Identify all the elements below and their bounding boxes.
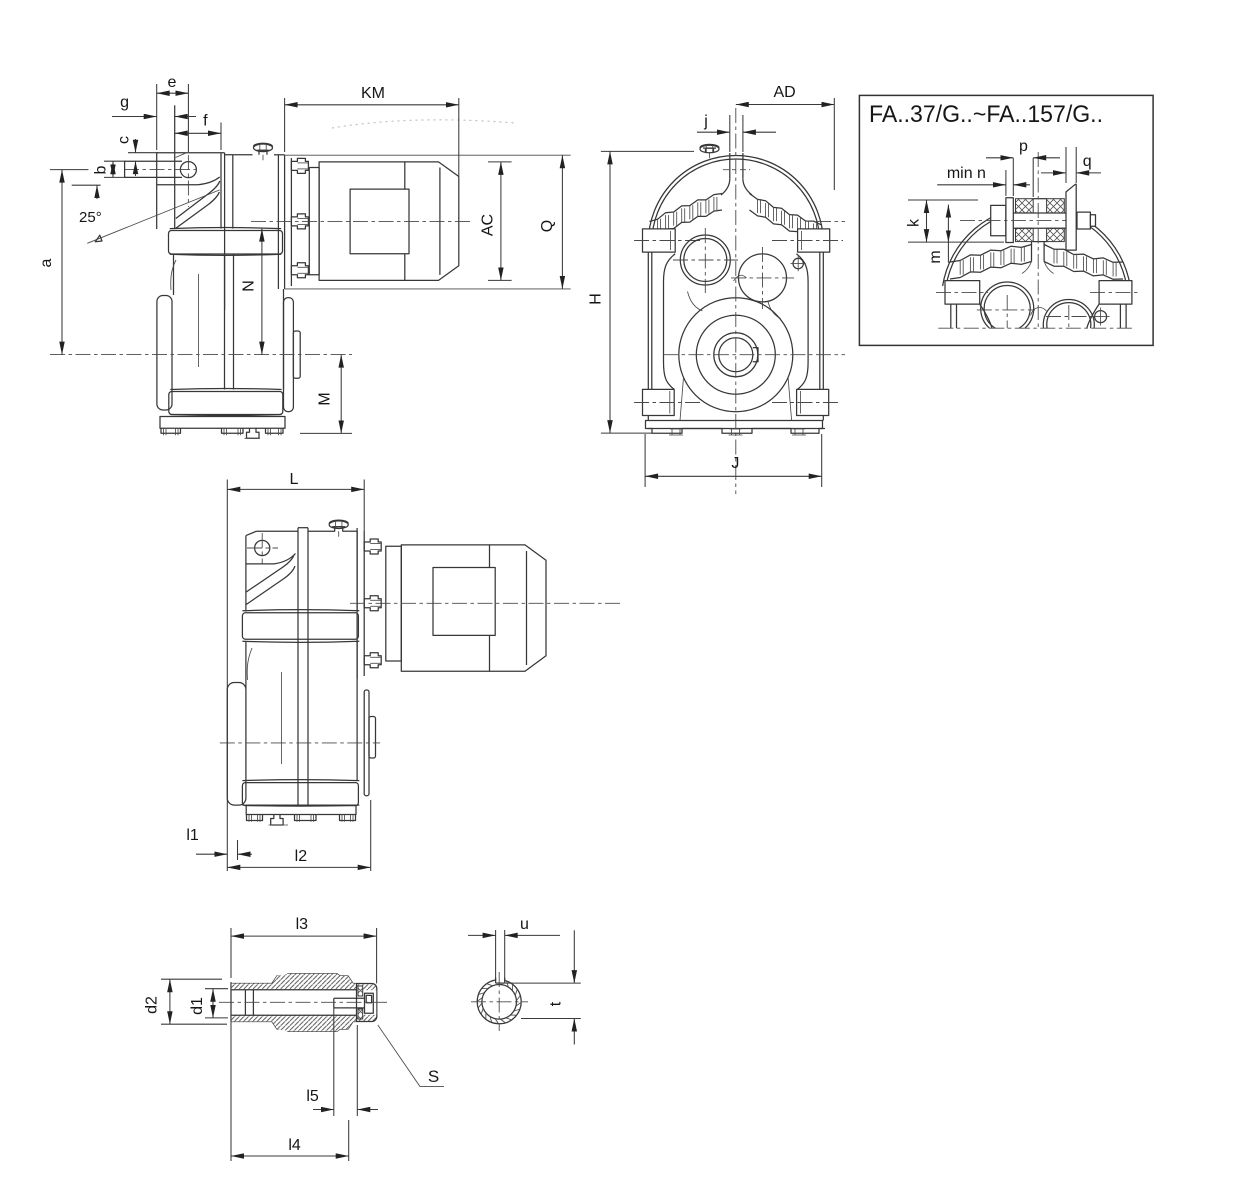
svg-text:l3: l3 <box>296 916 309 933</box>
svg-text:u: u <box>520 916 529 933</box>
svg-text:e: e <box>168 74 177 91</box>
svg-text:k: k <box>906 218 923 227</box>
svg-text:M: M <box>317 392 334 405</box>
svg-text:g: g <box>120 94 129 111</box>
svg-text:H: H <box>588 293 605 305</box>
svg-text:l1: l1 <box>186 827 199 844</box>
svg-text:J: J <box>731 455 739 472</box>
svg-text:b: b <box>92 165 109 174</box>
svg-text:l5: l5 <box>306 1088 319 1105</box>
svg-text:Q: Q <box>539 220 556 232</box>
svg-text:j: j <box>703 113 708 130</box>
svg-text:f: f <box>203 113 208 130</box>
svg-text:FA..37/G..~FA..157/G..: FA..37/G..~FA..157/G.. <box>869 101 1103 128</box>
svg-text:l2: l2 <box>295 848 308 865</box>
svg-text:d2: d2 <box>144 996 161 1014</box>
svg-text:L: L <box>290 471 299 488</box>
svg-text:a: a <box>38 258 55 267</box>
svg-text:S: S <box>428 1067 439 1086</box>
svg-text:AC: AC <box>479 214 496 236</box>
svg-text:p: p <box>1019 138 1028 155</box>
svg-text:KM: KM <box>361 85 385 102</box>
svg-text:AD: AD <box>773 84 795 101</box>
svg-text:t: t <box>548 1001 565 1006</box>
svg-text:q: q <box>1083 153 1092 170</box>
svg-text:l4: l4 <box>288 1137 301 1154</box>
svg-text:c: c <box>115 136 132 144</box>
svg-text:d1: d1 <box>189 997 206 1015</box>
svg-text:m: m <box>927 250 944 263</box>
svg-text:min n: min n <box>947 165 986 182</box>
svg-text:25°: 25° <box>79 209 102 226</box>
svg-text:N: N <box>241 280 258 292</box>
